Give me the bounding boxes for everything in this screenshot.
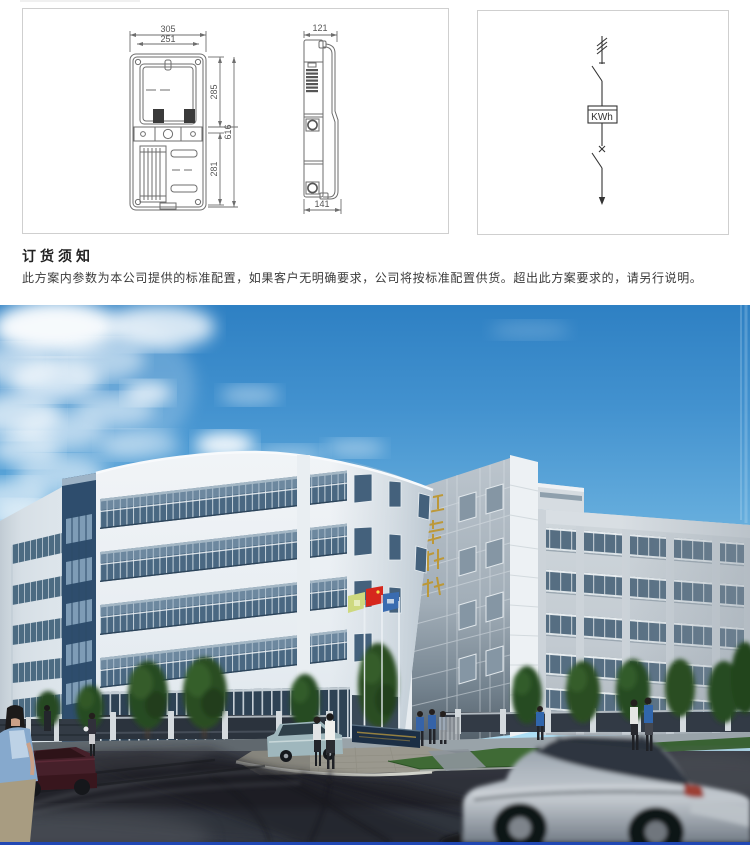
svg-text:121: 121 [312, 23, 327, 33]
svg-text:281: 281 [209, 161, 219, 176]
svg-text:141: 141 [314, 199, 329, 209]
svg-text:305: 305 [160, 24, 175, 34]
svg-text:285: 285 [209, 84, 219, 99]
svg-text:616: 616 [223, 124, 233, 139]
svg-text:251: 251 [160, 34, 175, 44]
svg-text:KWh: KWh [591, 112, 613, 123]
